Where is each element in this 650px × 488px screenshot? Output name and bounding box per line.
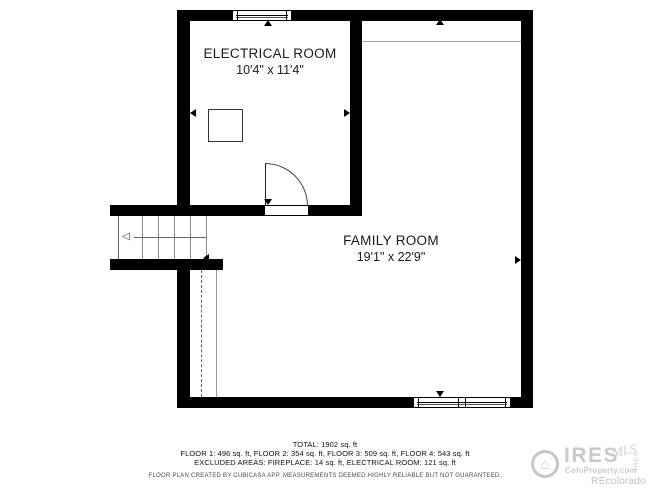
electrical-fixture-box bbox=[208, 109, 243, 142]
window-glass-line bbox=[417, 404, 507, 405]
dim-arrow-down bbox=[436, 391, 444, 397]
coloproperty-text: ColoProperty.com bbox=[565, 466, 637, 475]
window-glass-line bbox=[236, 17, 288, 18]
house-icon: ⌂ bbox=[540, 457, 549, 472]
recolorado-text: REcolorado bbox=[591, 475, 646, 487]
window-glass-line bbox=[236, 15, 288, 16]
window-bottom bbox=[413, 397, 511, 408]
wall-electrical-right bbox=[350, 10, 362, 216]
wall-bottom-left-segment bbox=[177, 397, 413, 408]
room-dimensions: 10'4" x 11'4" bbox=[182, 63, 358, 77]
wall-left-upper bbox=[177, 10, 190, 216]
window-jamb bbox=[237, 11, 238, 20]
stair-hidden-edge-dashed bbox=[201, 270, 202, 397]
dim-arrow-up bbox=[436, 19, 444, 25]
room-dimensions: 19'1" x 22'9" bbox=[301, 250, 481, 264]
stair-open-edge bbox=[118, 216, 119, 259]
ires-watermark: ⌂ IRES MLS ColoProperty.com REcolorado I… bbox=[528, 443, 650, 488]
wall-electrical-bottom-left bbox=[110, 205, 265, 216]
dim-arrow-down bbox=[264, 199, 272, 205]
family-room-label: FAMILY ROOM 19'1" x 22'9" bbox=[301, 233, 481, 264]
dim-arrow-left bbox=[203, 254, 209, 262]
stair-railing-line bbox=[216, 270, 217, 397]
room-name: ELECTRICAL ROOM bbox=[182, 46, 358, 61]
wall-right bbox=[521, 10, 533, 408]
window-jamb bbox=[418, 398, 419, 407]
wall-left-lower bbox=[177, 259, 190, 408]
window-jamb bbox=[286, 11, 287, 20]
dim-arrow-right bbox=[515, 256, 521, 264]
electrical-room-label: ELECTRICAL ROOM 10'4" x 11'4" bbox=[182, 46, 358, 77]
dim-arrow-left bbox=[190, 109, 196, 117]
ires-logo-circle: ⌂ bbox=[531, 450, 559, 478]
room-name: FAMILY ROOM bbox=[301, 233, 481, 248]
wall-electrical-bottom-right bbox=[308, 205, 362, 216]
window-mullion bbox=[458, 398, 459, 407]
wall-top-right-segment bbox=[292, 10, 533, 21]
stair-direction-icon: ◁ bbox=[122, 232, 130, 242]
ires-vertical-text: IRES bbox=[633, 451, 640, 470]
ceiling-beam-line bbox=[362, 41, 521, 42]
dim-arrow-up bbox=[264, 20, 272, 26]
floor-plan: ◁ ELECTRICAL ROOM 10'4" x 11'4" FAMILY R… bbox=[0, 0, 650, 488]
dim-arrow-right bbox=[344, 109, 350, 117]
stair-tread bbox=[206, 216, 207, 259]
window-jamb bbox=[505, 398, 506, 407]
stair-direction-line bbox=[134, 237, 206, 238]
window-mullion bbox=[465, 398, 466, 407]
door-opening bbox=[265, 205, 308, 216]
window-glass-line bbox=[417, 402, 507, 403]
window-top bbox=[232, 10, 292, 21]
